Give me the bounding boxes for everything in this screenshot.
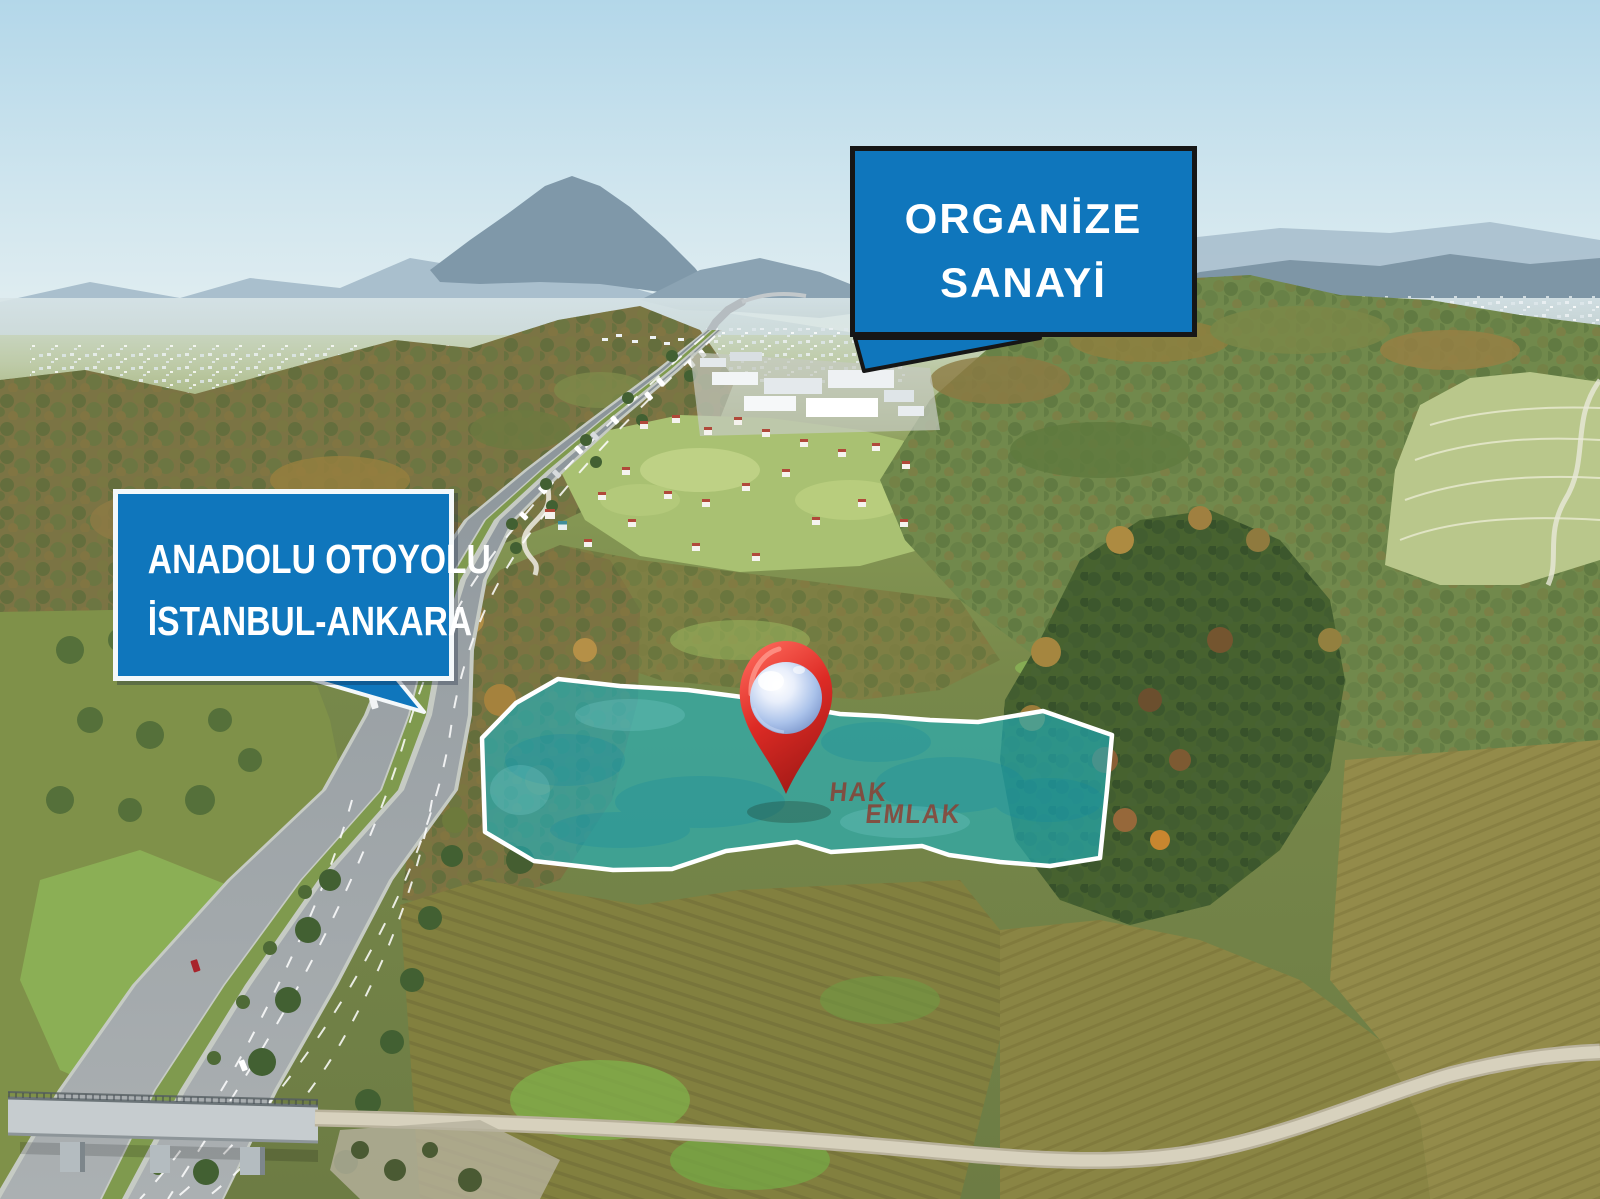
pin-sphere	[750, 662, 822, 734]
organize-sanayi-line1: ORGANİZE	[855, 187, 1192, 251]
organize-sanayi-callout: ORGANİZE SANAYİ	[850, 146, 1197, 337]
watermark-line2: EMLAK	[864, 799, 963, 830]
aerial-photo-listing: ORGANİZE SANAYİ ANADOLU OTOYOLU İSTANBUL…	[0, 0, 1600, 1199]
anadolu-otoyolu-callout: ANADOLU OTOYOLU İSTANBUL-ANKARA	[113, 489, 454, 681]
anadolu-otoyolu-line2: İSTANBUL-ANKARA	[148, 590, 419, 652]
organize-sanayi-line2: SANAYİ	[855, 251, 1192, 315]
bridge-pier	[150, 1145, 170, 1173]
anadolu-otoyolu-callout-tail	[292, 674, 442, 722]
organize-sanayi-callout-tail	[845, 330, 1055, 385]
anadolu-otoyolu-line1: ANADOLU OTOYOLU	[148, 528, 419, 590]
